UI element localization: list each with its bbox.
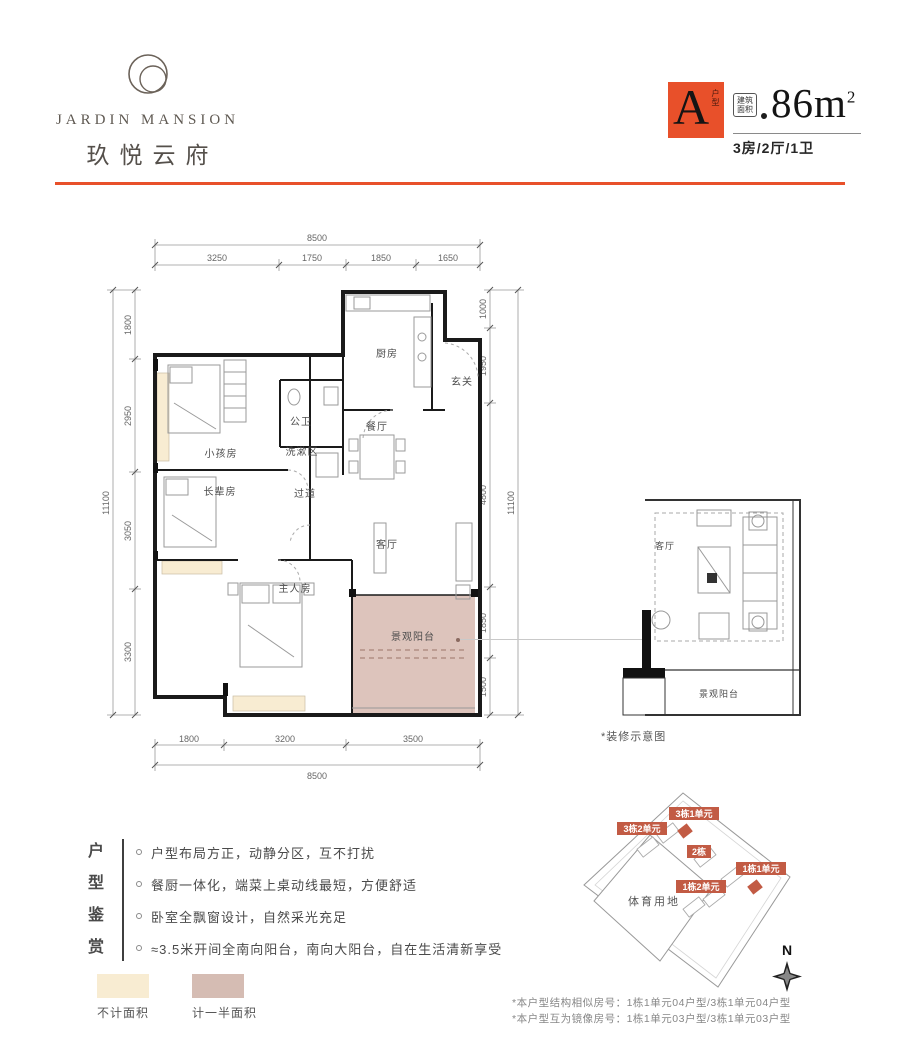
footnote-1: *本户型结构相似房号：1栋1单元04户型/3栋1单元04户型 bbox=[512, 995, 791, 1011]
dim-left-seg-3: 3050 bbox=[123, 521, 133, 541]
dim-bottom-total: 8500 bbox=[307, 771, 327, 781]
label-dining: 餐厅 bbox=[366, 420, 388, 433]
feature-item: 卧室全飘窗设计，自然采光充足 bbox=[136, 900, 502, 932]
dim-left-seg-1: 1800 bbox=[123, 315, 133, 335]
label-guest-bath: 公卫 bbox=[290, 417, 312, 428]
bay-window-elders bbox=[162, 561, 222, 574]
label-kids-room: 小孩房 bbox=[205, 447, 238, 460]
building-area-label-line2: 面积 bbox=[737, 105, 753, 114]
label-wash-area: 洗漱区 bbox=[286, 446, 319, 458]
features-list: 户型布局方正，动静分区，互不打扰 餐厨一体化，端菜上桌动线最短，方便舒适 卧室全… bbox=[136, 836, 502, 964]
area-value: 86m2 bbox=[771, 79, 856, 127]
legend-swatch-cream bbox=[97, 974, 149, 998]
circle-bullet-icon bbox=[136, 849, 142, 855]
unit-type-badge: A 户型 bbox=[668, 82, 724, 138]
site-tag-3: 2栋 bbox=[692, 846, 706, 857]
detail-plan-caption: *装修示意图 bbox=[601, 728, 666, 744]
site-plan: 3栋1单元 3栋2单元 2栋 1栋1单元 1栋2单元 体育用地 N bbox=[572, 785, 847, 1020]
label-entry: 玄关 bbox=[451, 375, 473, 388]
site-tag-4: 1栋1单元 bbox=[742, 863, 779, 874]
dim-bottom-seg-2: 3200 bbox=[275, 734, 295, 744]
feature-text-4: ≈3.5米开间全南向阳台，南向大阳台，自在生活清新享受 bbox=[151, 939, 502, 958]
features-title-char-2: 型 bbox=[88, 868, 110, 900]
accent-divider bbox=[55, 182, 845, 185]
dim-left-seg-4: 3300 bbox=[123, 642, 133, 662]
footnotes: *本户型结构相似房号：1栋1单元04户型/3栋1单元04户型 *本户型互为镜像房… bbox=[512, 995, 791, 1027]
legend-label-half-area: 计一半面积 bbox=[192, 1004, 257, 1021]
feature-item: ≈3.5米开间全南向阳台，南向大阳台，自在生活清新享受 bbox=[136, 932, 502, 964]
site-tag-2: 3栋2单元 bbox=[623, 823, 660, 834]
sports-land-label: 体育用地 bbox=[628, 894, 680, 908]
dim-bottom-seg-1: 1800 bbox=[179, 734, 199, 744]
detail-label-balcony: 景观阳台 bbox=[699, 688, 739, 699]
bay-window-master bbox=[233, 696, 305, 711]
area-superscript: 2 bbox=[847, 87, 857, 106]
label-balcony: 景观阳台 bbox=[391, 630, 435, 643]
circle-bullet-icon bbox=[136, 913, 142, 919]
area-number: 86m bbox=[771, 80, 847, 126]
detail-plan: 客厅 景观阳台 bbox=[595, 485, 810, 755]
brand-name-cn: 玖悦云府 bbox=[40, 136, 255, 170]
building-area-label-line1: 建筑 bbox=[737, 96, 753, 105]
features-section: 户 型 鉴 赏 户型布局方正，动静分区，互不打扰 餐厨一体化，端菜上桌动线最短，… bbox=[88, 836, 502, 964]
circle-bullet-icon bbox=[136, 881, 142, 887]
unit-type-caption: 户型 bbox=[711, 89, 720, 107]
area-fills bbox=[157, 373, 475, 714]
unit-type-letter: A bbox=[673, 78, 709, 136]
features-title-char-3: 鉴 bbox=[88, 900, 110, 932]
site-tag-1: 3栋1单元 bbox=[675, 808, 712, 819]
detail-label-living: 客厅 bbox=[655, 540, 675, 551]
site-tag-5: 1栋2单元 bbox=[682, 881, 719, 892]
dim-top-seg-1: 3250 bbox=[207, 253, 227, 263]
label-corridor: 过道 bbox=[294, 487, 316, 500]
brochure-page: JARDIN MANSION 玖悦云府 A 户型 建筑 面积 86m2 3房/2… bbox=[0, 0, 898, 1050]
features-title-char-4: 赏 bbox=[88, 932, 110, 964]
legend-item-half-area: 计一半面积 bbox=[192, 974, 257, 1021]
dim-right-seg-1: 1000 bbox=[478, 299, 488, 319]
dim-top-seg-4: 1650 bbox=[438, 253, 458, 263]
legend-item-no-area: 不计面积 bbox=[97, 974, 149, 1021]
label-elders-room: 长辈房 bbox=[204, 485, 237, 498]
brand-name-en: JARDIN MANSION bbox=[40, 112, 255, 129]
compass-n-label: N bbox=[782, 942, 792, 958]
building-area-label: 建筑 面积 bbox=[733, 93, 757, 117]
footnote-2: *本户型互为镜像房号：1栋1单元03户型/3栋1单元03户型 bbox=[512, 1011, 791, 1027]
compass-star-inner-icon bbox=[778, 967, 797, 986]
legend-label-no-area: 不计面积 bbox=[97, 1004, 149, 1021]
feature-text-1: 户型布局方正，动静分区，互不打扰 bbox=[151, 843, 375, 862]
unit-layout-text: 3房/2厅/1卫 bbox=[733, 138, 814, 158]
dim-bottom-seg-3: 3500 bbox=[403, 734, 423, 744]
features-title-char-1: 户 bbox=[88, 836, 110, 868]
area-underline bbox=[733, 133, 861, 134]
dim-left-seg-2: 2950 bbox=[123, 406, 133, 426]
label-living: 客厅 bbox=[376, 538, 398, 551]
dim-top-seg-2: 1750 bbox=[302, 253, 322, 263]
dim-right-total: 11100 bbox=[506, 491, 516, 515]
main-floor-plan: 8500 3250 1750 1850 1650 11100 1800 2950… bbox=[88, 225, 558, 795]
feature-text-2: 餐厨一体化，端菜上桌动线最短，方便舒适 bbox=[151, 875, 417, 894]
compass: N bbox=[772, 942, 802, 992]
label-master-room: 主人房 bbox=[279, 582, 312, 595]
features-title: 户 型 鉴 赏 bbox=[88, 836, 110, 964]
legend-swatch-mauve bbox=[192, 974, 244, 998]
brand-logo: JARDIN MANSION 玖悦云府 bbox=[40, 52, 255, 170]
circle-bullet-icon bbox=[136, 945, 142, 951]
bay-window-kids bbox=[157, 373, 169, 461]
feature-item: 户型布局方正，动静分区，互不打扰 bbox=[136, 836, 502, 868]
label-kitchen: 厨房 bbox=[376, 347, 398, 360]
brand-logo-icon bbox=[123, 52, 173, 102]
dim-left-total: 11100 bbox=[101, 491, 111, 515]
features-divider bbox=[122, 839, 124, 961]
feature-item: 餐厨一体化，端菜上桌动线最短，方便舒适 bbox=[136, 868, 502, 900]
detail-tv-block bbox=[707, 573, 717, 583]
dim-top-seg-3: 1850 bbox=[371, 253, 391, 263]
area-dot-icon bbox=[761, 113, 767, 119]
balcony-half-area-fill bbox=[352, 595, 475, 714]
feature-text-3: 卧室全飘窗设计，自然采光充足 bbox=[151, 907, 347, 926]
dim-top-total: 8500 bbox=[307, 233, 327, 243]
